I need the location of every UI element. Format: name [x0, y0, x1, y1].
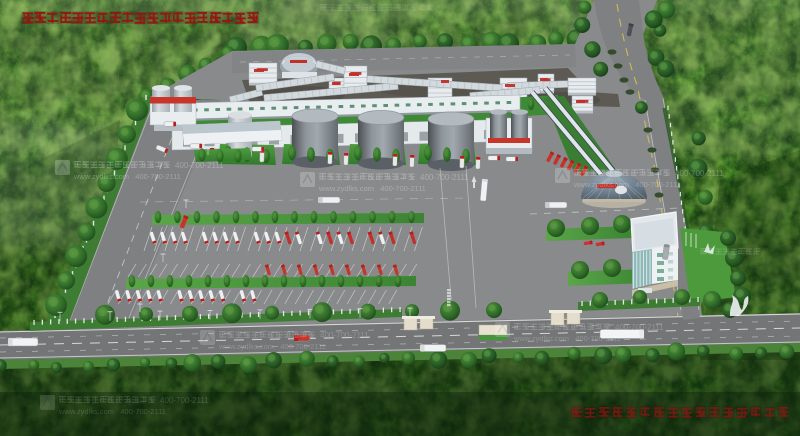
svg-text:www.zydlks.com 400-700-2111: www.zydlks.com 400-700-2111 [573, 180, 681, 189]
svg-text:www.zydlks.com 400-700-2111: www.zydlks.com 400-700-2111 [318, 184, 426, 193]
svg-text:www.zydlks.com 400-700-2111: www.zydlks.com 400-700-2111 [513, 334, 621, 343]
svg-text:400-700-2111: 400-700-2111 [160, 396, 209, 405]
svg-text:400-700-2111: 400-700-2111 [420, 173, 469, 182]
svg-text:400-700-2111: 400-700-2111 [175, 161, 224, 170]
svg-text:www.zydlks.com 400-700-2111: www.zydlks.com 400-700-2111 [218, 342, 326, 351]
svg-text:400-700-2111: 400-700-2111 [675, 169, 724, 178]
svg-text:www.zydlks.com 400-700-2111: www.zydlks.com 400-700-2111 [58, 407, 166, 416]
svg-text:www.zydlks.com 400-700-2111: www.zydlks.com 400-700-2111 [73, 172, 181, 181]
svg-text:400-700-2111: 400-700-2111 [320, 331, 369, 340]
svg-text:400-700-2111: 400-700-2111 [615, 323, 664, 332]
